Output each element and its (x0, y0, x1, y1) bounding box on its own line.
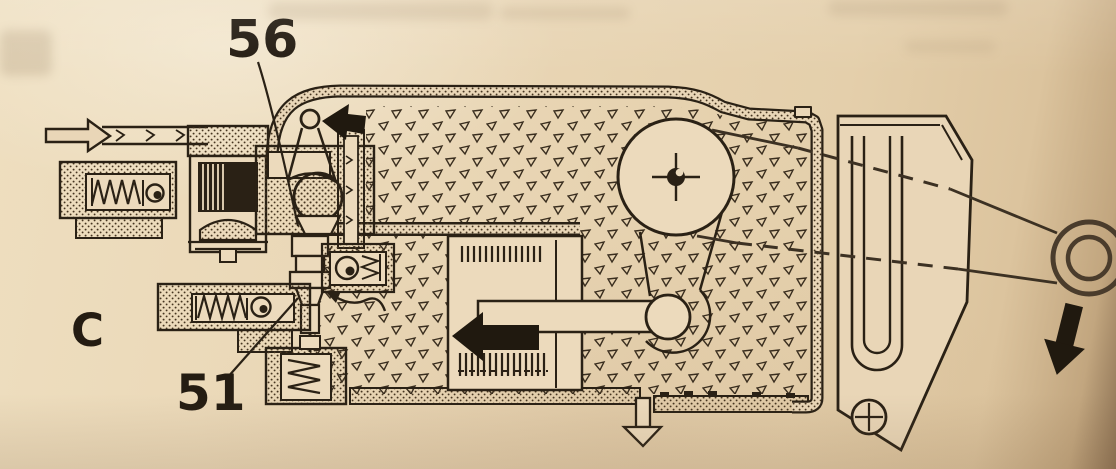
cable-eye (1053, 222, 1116, 294)
control-valve-block (60, 110, 394, 404)
callout-56-label: 56 (226, 10, 298, 70)
housing-top-lug (795, 107, 811, 117)
flow-chevrons (116, 130, 184, 141)
callout-51-label: 51 (176, 364, 246, 422)
rack-comb-lower (460, 353, 544, 376)
solenoid-coil (198, 162, 258, 212)
lever-pivot (301, 110, 319, 128)
hydraulic-unit-cutaway-diagram: 56 51 C (0, 0, 1116, 469)
cam-roller (646, 295, 690, 339)
scanned-manual-page: 56 51 C (0, 0, 1116, 469)
mounting-bracket (838, 116, 972, 450)
section-label: C (71, 304, 104, 357)
cable-pull-arrow (1036, 300, 1094, 380)
cam-pulley (618, 119, 734, 235)
ball-valve-seat (296, 216, 340, 234)
inlet-flow-arrow (46, 120, 110, 151)
